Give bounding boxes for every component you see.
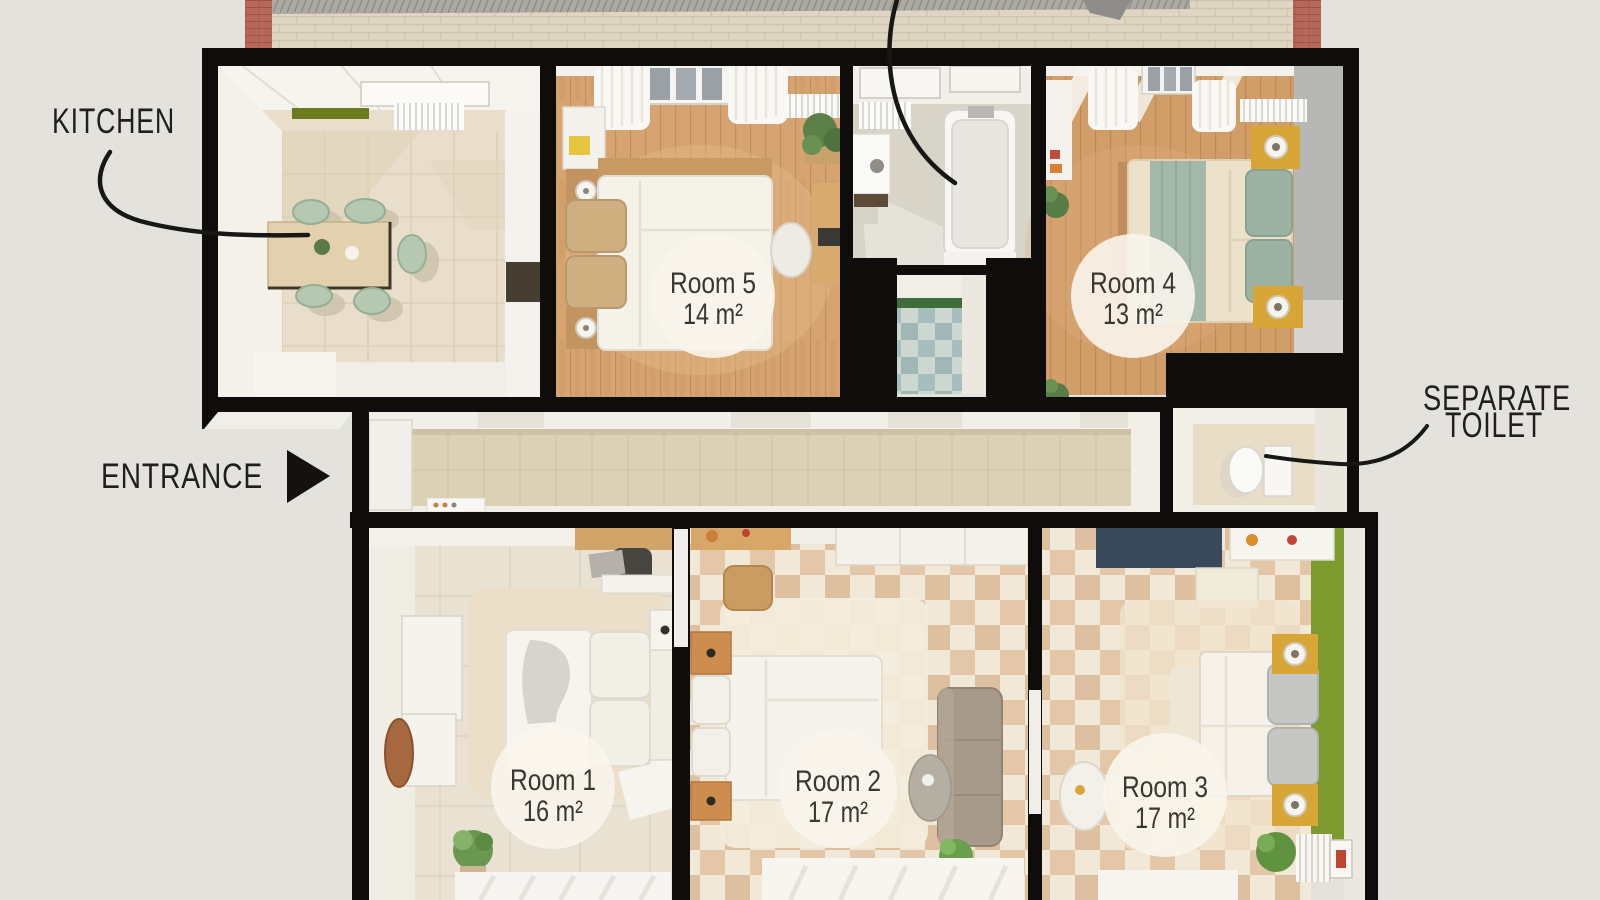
svg-text:Room 5: Room 5 bbox=[670, 267, 756, 300]
svg-text:TOILET: TOILET bbox=[1445, 406, 1543, 445]
svg-text:14 m²: 14 m² bbox=[683, 298, 743, 331]
svg-text:17 m²: 17 m² bbox=[1135, 802, 1195, 835]
svg-text:ENTRANCE: ENTRANCE bbox=[101, 457, 263, 496]
svg-text:KITCHEN: KITCHEN bbox=[52, 102, 175, 141]
svg-text:17 m²: 17 m² bbox=[808, 796, 868, 829]
svg-text:Room 3: Room 3 bbox=[1122, 771, 1208, 804]
svg-text:Room 4: Room 4 bbox=[1090, 267, 1176, 300]
svg-text:16 m²: 16 m² bbox=[523, 795, 583, 828]
svg-text:Room 1: Room 1 bbox=[510, 764, 596, 797]
svg-text:13 m²: 13 m² bbox=[1103, 298, 1163, 331]
svg-text:Room 2: Room 2 bbox=[795, 765, 881, 798]
